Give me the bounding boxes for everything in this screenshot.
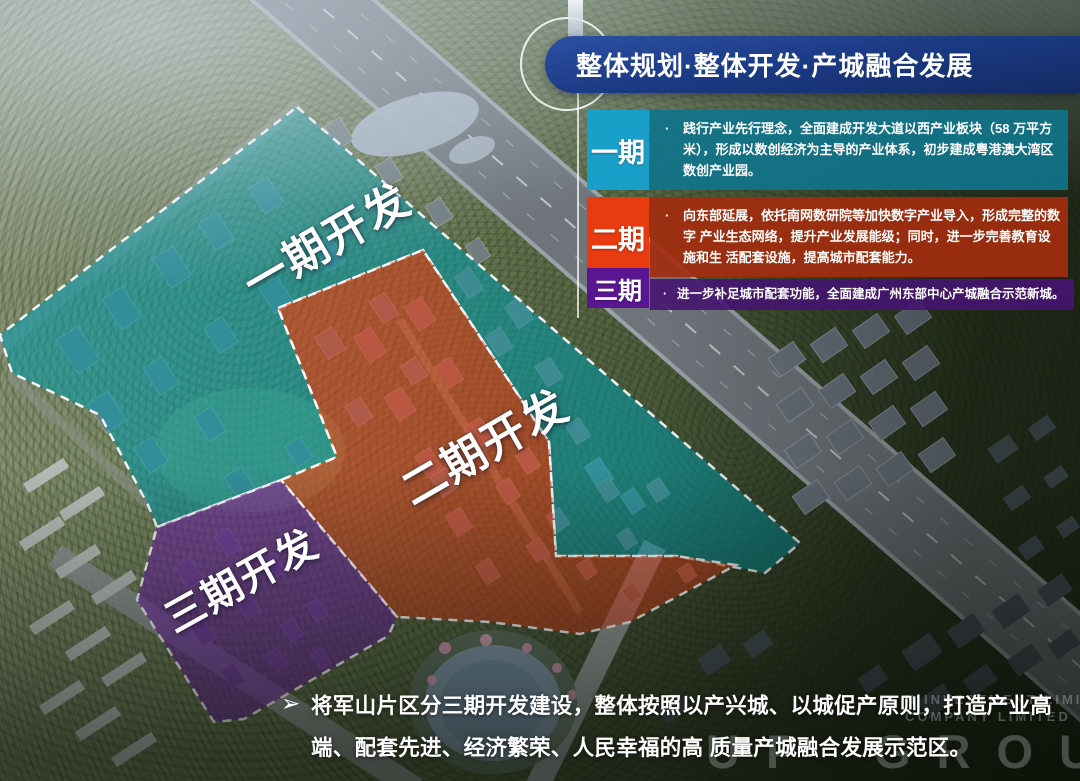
phase3-description: · 进一步补足城市配套功能，全面建成广州东部中心产城融合示范新城。 — [650, 279, 1074, 310]
bullet-icon: · — [665, 118, 669, 139]
bullet-icon: · — [663, 284, 667, 305]
slide: N INVESTMENT LIMITED COMPANY LIMITED GRO… — [0, 0, 1080, 781]
phase1-text: 践行产业先行理念，全面建成开发大道以西产业板块（58 万平方米），形成以数创经济… — [683, 121, 1054, 178]
phase1-description: · 践行产业先行理念，全面建成开发大道以西产业板块（58 万平方米），形成以数创… — [650, 110, 1068, 190]
arrow-bullet-icon: ➢ — [281, 690, 300, 717]
bullet-icon: · — [665, 205, 669, 226]
title-banner: 整体规划·整体开发·产城融合发展 — [545, 36, 1080, 93]
phase2-badge: 二期 — [587, 197, 649, 277]
phase3-text: 进一步补足城市配套功能，全面建成广州东部中心产城融合示范新城。 — [677, 287, 1065, 301]
phase2-description: · 向东部延展，依托南网数研院等加快数字产业导入，形成完整的数字 产业生态网络，… — [650, 197, 1068, 277]
summary-line-2: 端、配套先进、经济繁荣、人民幸福的高 质量产城融合发展示范区。 — [311, 731, 971, 762]
summary-paragraph: ➢ 将军山片区分三期开发建设，整体按照以产兴城、以城促产原则，打造产业高 端、配… — [281, 687, 1080, 781]
page-title: 整体规划·整体开发·产城融合发展 — [576, 46, 973, 83]
phase3-badge: 三期 — [587, 268, 649, 308]
summary-line-1: 将军山片区分三期开发建设，整体按照以产兴城、以城促产原则，打造产业高 — [311, 689, 1052, 720]
phase1-badge: 一期 — [587, 110, 649, 190]
phase2-text: 向东部延展，依托南网数研院等加快数字产业导入，形成完整的数字 产业生态网络，提升… — [683, 208, 1060, 265]
vertical-connector-line — [577, 90, 579, 318]
